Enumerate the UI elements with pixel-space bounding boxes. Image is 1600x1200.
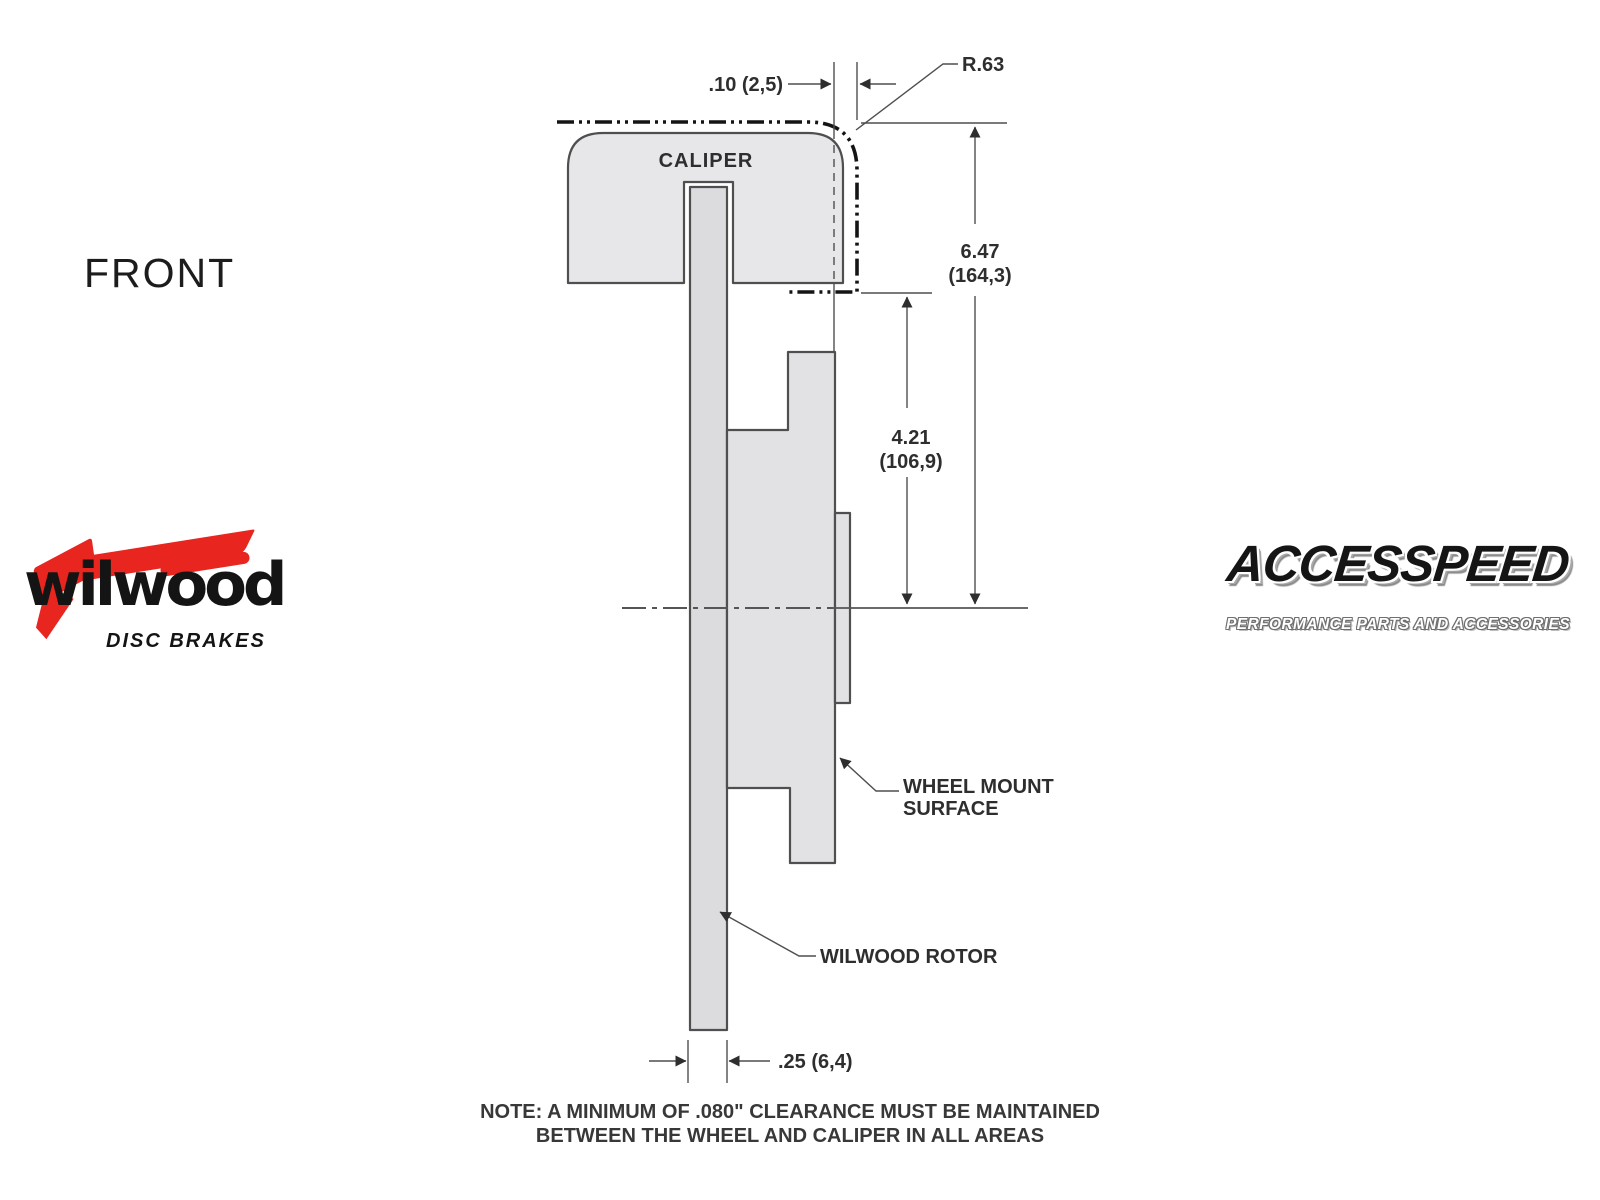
rotor-label: WILWOOD ROTOR: [820, 946, 998, 968]
view-label-front: FRONT: [84, 250, 235, 297]
dim-height-mm-text: (164,3): [948, 265, 1011, 287]
wheel-mount-label-line1: WHEEL MOUNT: [903, 776, 1054, 798]
clearance-note: NOTE: A MINIMUM OF .080" CLEARANCE MUST …: [480, 1100, 1100, 1148]
page-canvas: .10 (2,5) R.63 6.47 (164,3) 4.21 (106,9)…: [0, 0, 1600, 1200]
wilwood-tagline: DISC BRAKES: [106, 630, 266, 653]
clearance-note-line1: NOTE: A MINIMUM OF .080" CLEARANCE MUST …: [480, 1100, 1100, 1124]
caliper-label: CALIPER: [659, 150, 754, 172]
rotor-leader-line: [720, 912, 816, 956]
accesspeed-wordmark: ACCESSPEED: [1195, 534, 1600, 593]
dim-radius-text: R.63: [962, 54, 1004, 76]
wilwood-wordmark: wilwood: [24, 550, 283, 620]
accesspeed-tagline: PERFORMANCE PARTS AND ACCESSORIES: [1198, 616, 1598, 634]
dim-clearance-text: .10 (2,5): [709, 74, 783, 96]
dim-height-in-text: 6.47: [961, 241, 1000, 263]
accesspeed-logo: ACCESSPEED PERFORMANCE PARTS AND ACCESSO…: [1198, 534, 1598, 644]
clearance-note-line2: BETWEEN THE WHEEL AND CALIPER IN ALL ARE…: [480, 1124, 1100, 1148]
dim-mount-mm-text: (106,9): [879, 451, 942, 473]
dim-rotor-width-text: .25 (6,4): [778, 1051, 852, 1073]
dim-mount-in-text: 4.21: [892, 427, 931, 449]
wheel-mount-leader-line: [840, 758, 899, 791]
wilwood-logo: wilwood DISC BRAKES: [12, 536, 322, 656]
wheel-mount-label-line2: SURFACE: [903, 798, 999, 820]
radius-leader-line: [856, 64, 958, 130]
